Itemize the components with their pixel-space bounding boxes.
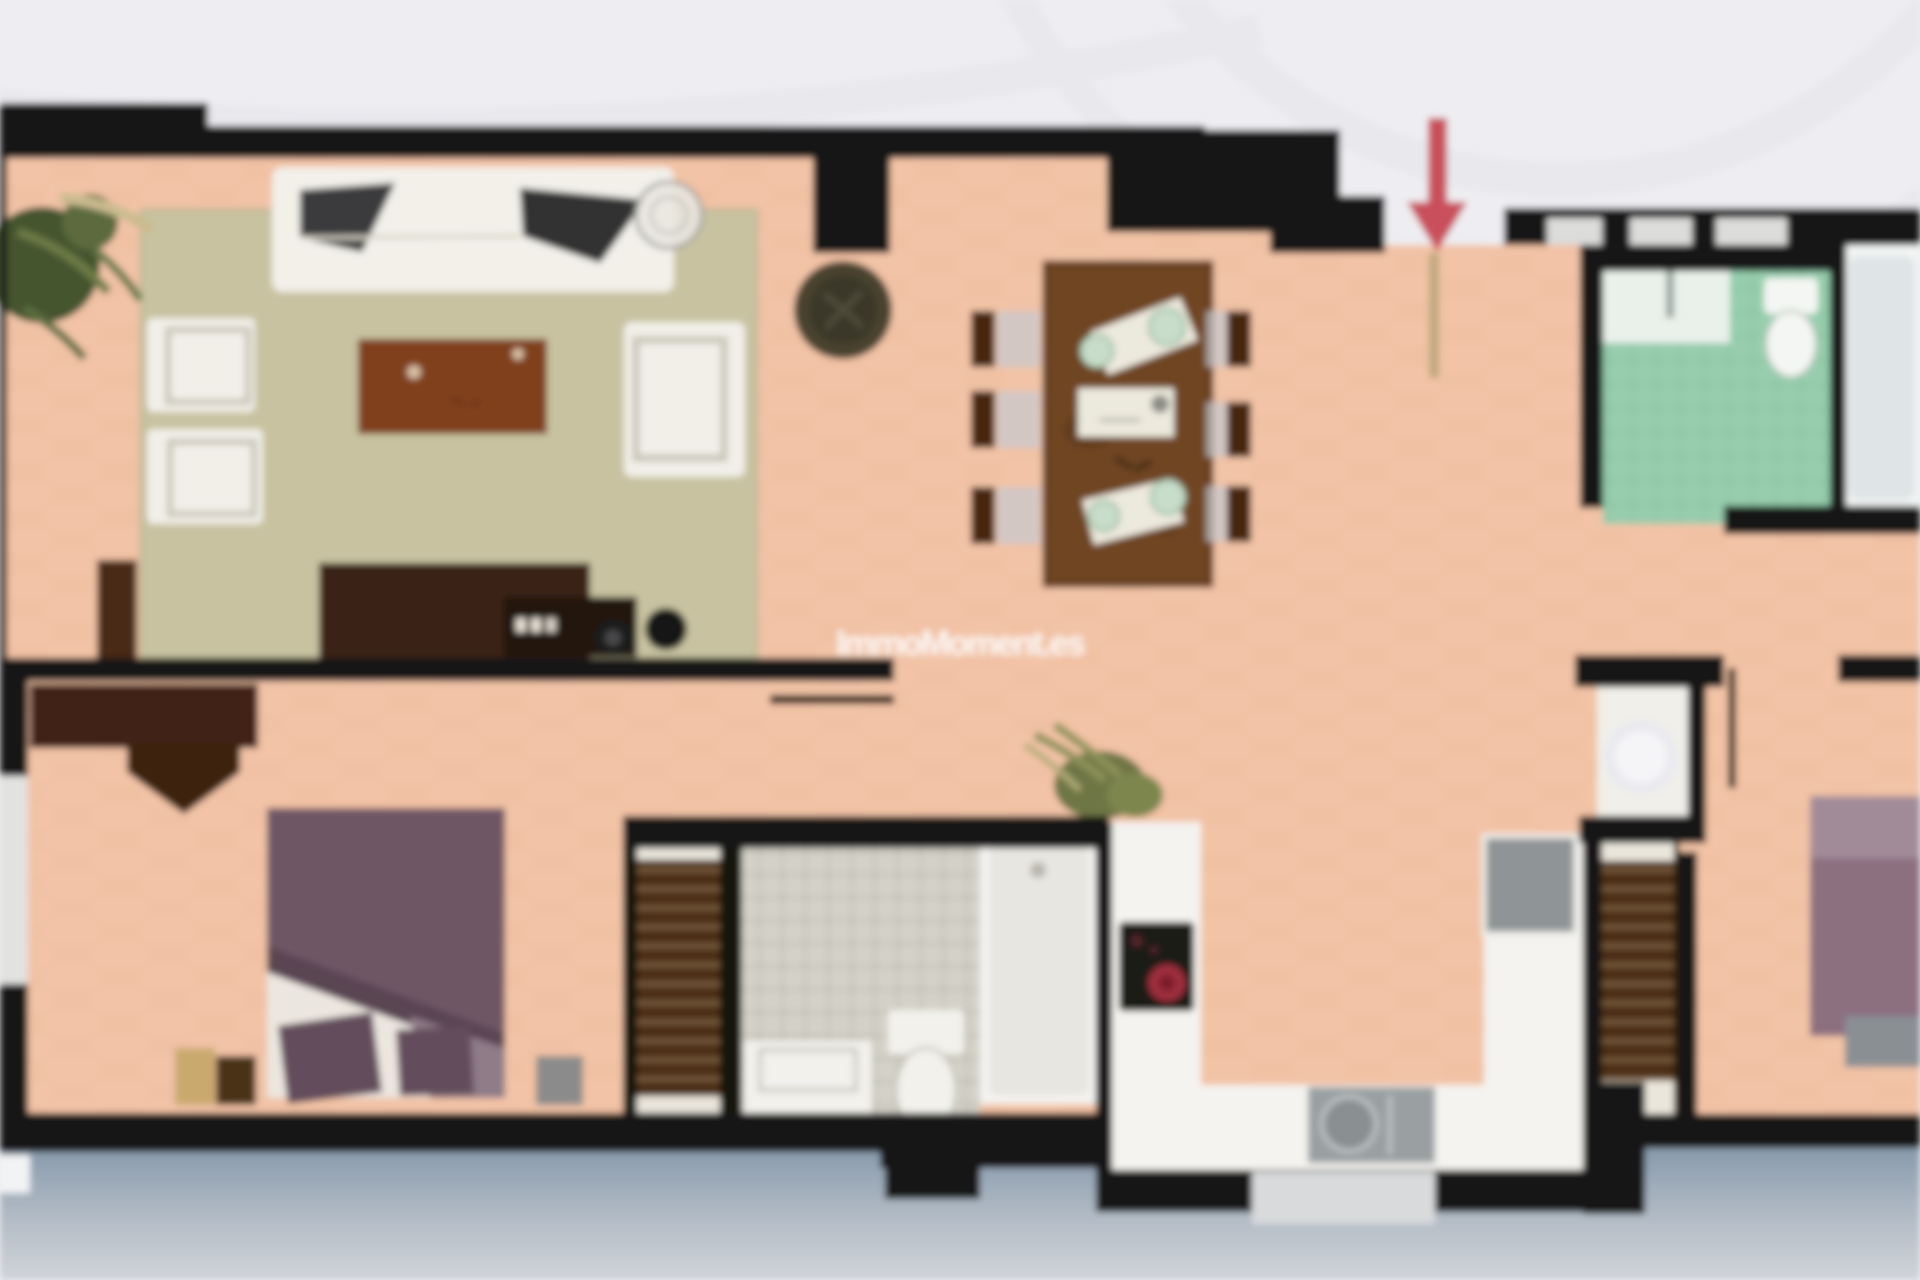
svg-text:ImmoMoment.es: ImmoMoment.es [836, 624, 1086, 663]
